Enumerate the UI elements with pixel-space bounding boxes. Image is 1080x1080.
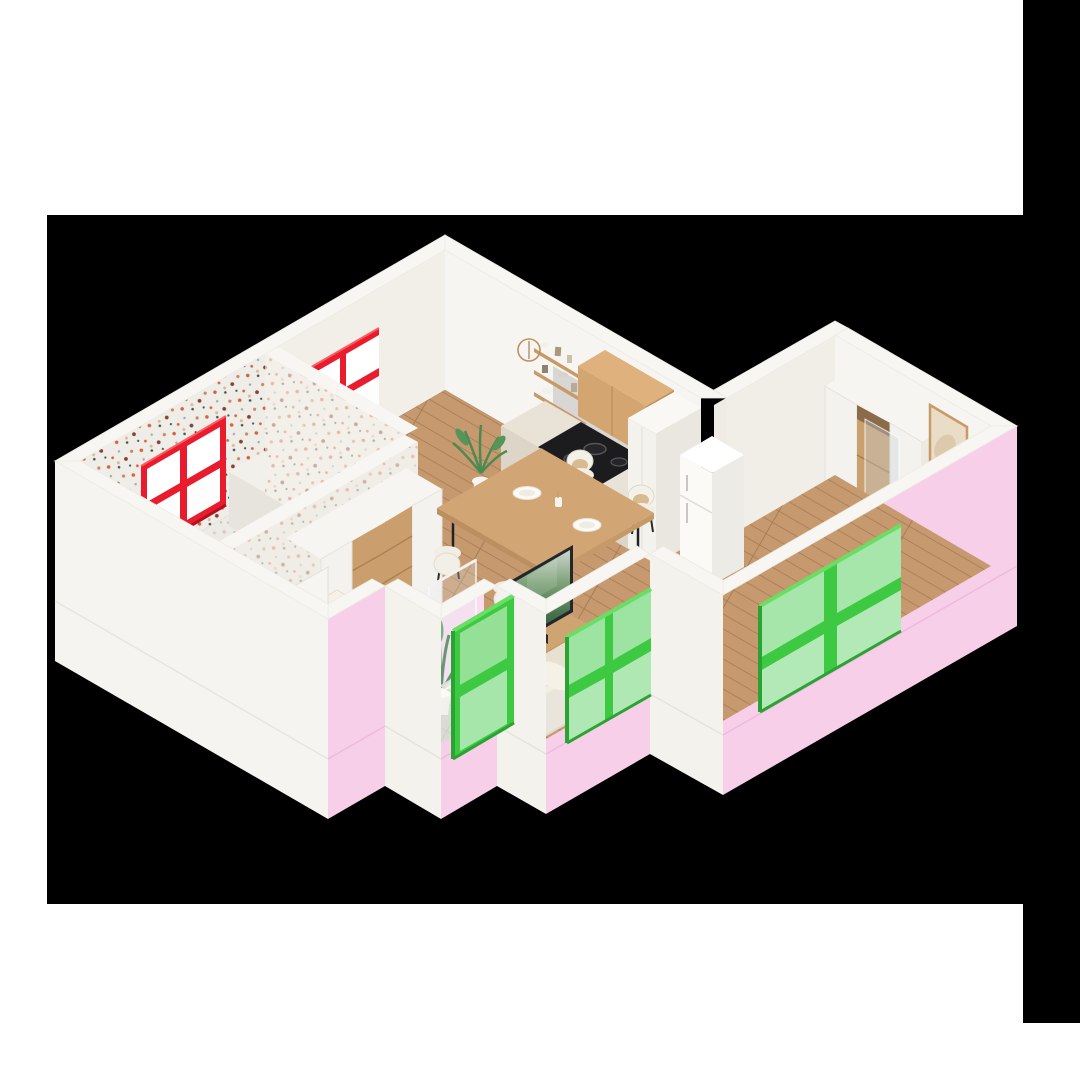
page [0, 0, 1080, 1080]
apartment-svg [47, 215, 1023, 904]
plate-stack [541, 342, 549, 347]
apartment [55, 235, 1017, 819]
bowl [558, 372, 568, 378]
jar [567, 355, 572, 363]
apartment-scene-wrap [47, 215, 1023, 904]
image-matte-right-strip [1023, 0, 1080, 1023]
wall-step-white-1 [650, 554, 723, 795]
wall-step-white-3 [385, 586, 441, 819]
table-vase [555, 497, 562, 507]
wall-pink-tip [328, 586, 385, 819]
jar [555, 347, 562, 356]
jar [542, 365, 548, 373]
burner [611, 458, 627, 466]
jar [571, 383, 577, 392]
bowl [542, 388, 552, 394]
